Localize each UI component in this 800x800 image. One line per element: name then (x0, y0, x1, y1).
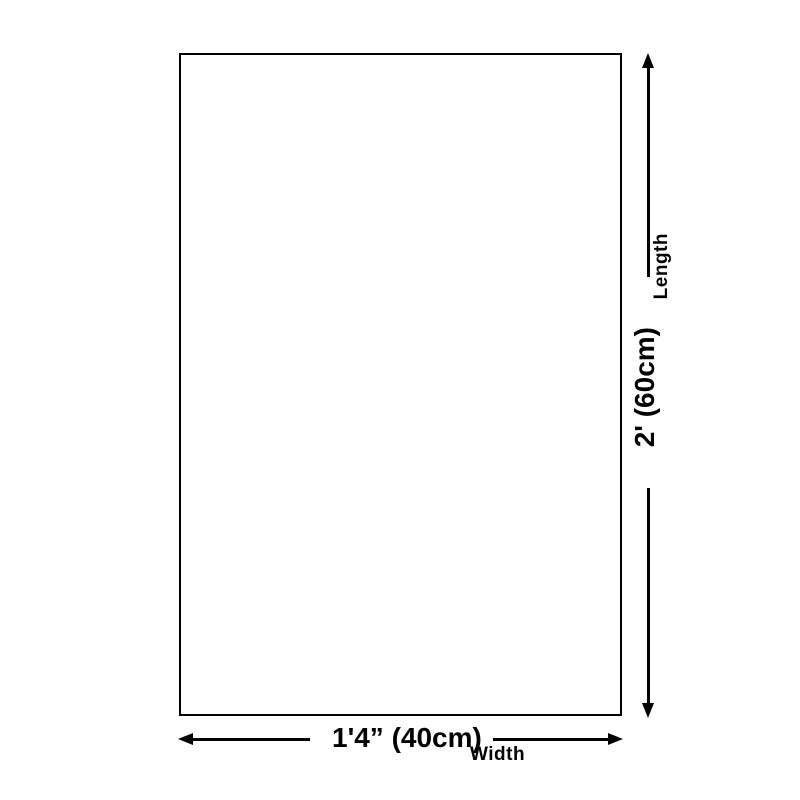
arrowhead-right-icon (608, 733, 623, 745)
product-outline-rect (179, 53, 622, 716)
length-arrow-lower-line (647, 488, 650, 704)
length-axis-label: Length (651, 233, 673, 299)
length-value: 2' (60cm) (629, 327, 661, 447)
arrowhead-down-icon (642, 703, 654, 718)
dimension-diagram: Length 2' (60cm) 1'4” (40cm) Width (0, 0, 800, 800)
length-arrow-upper-line (647, 65, 650, 277)
width-axis-label: Width (470, 744, 525, 766)
width-arrow-left-line (191, 738, 310, 741)
width-arrow-right-line (493, 738, 610, 741)
width-value: 1'4” (40cm) (332, 722, 482, 754)
